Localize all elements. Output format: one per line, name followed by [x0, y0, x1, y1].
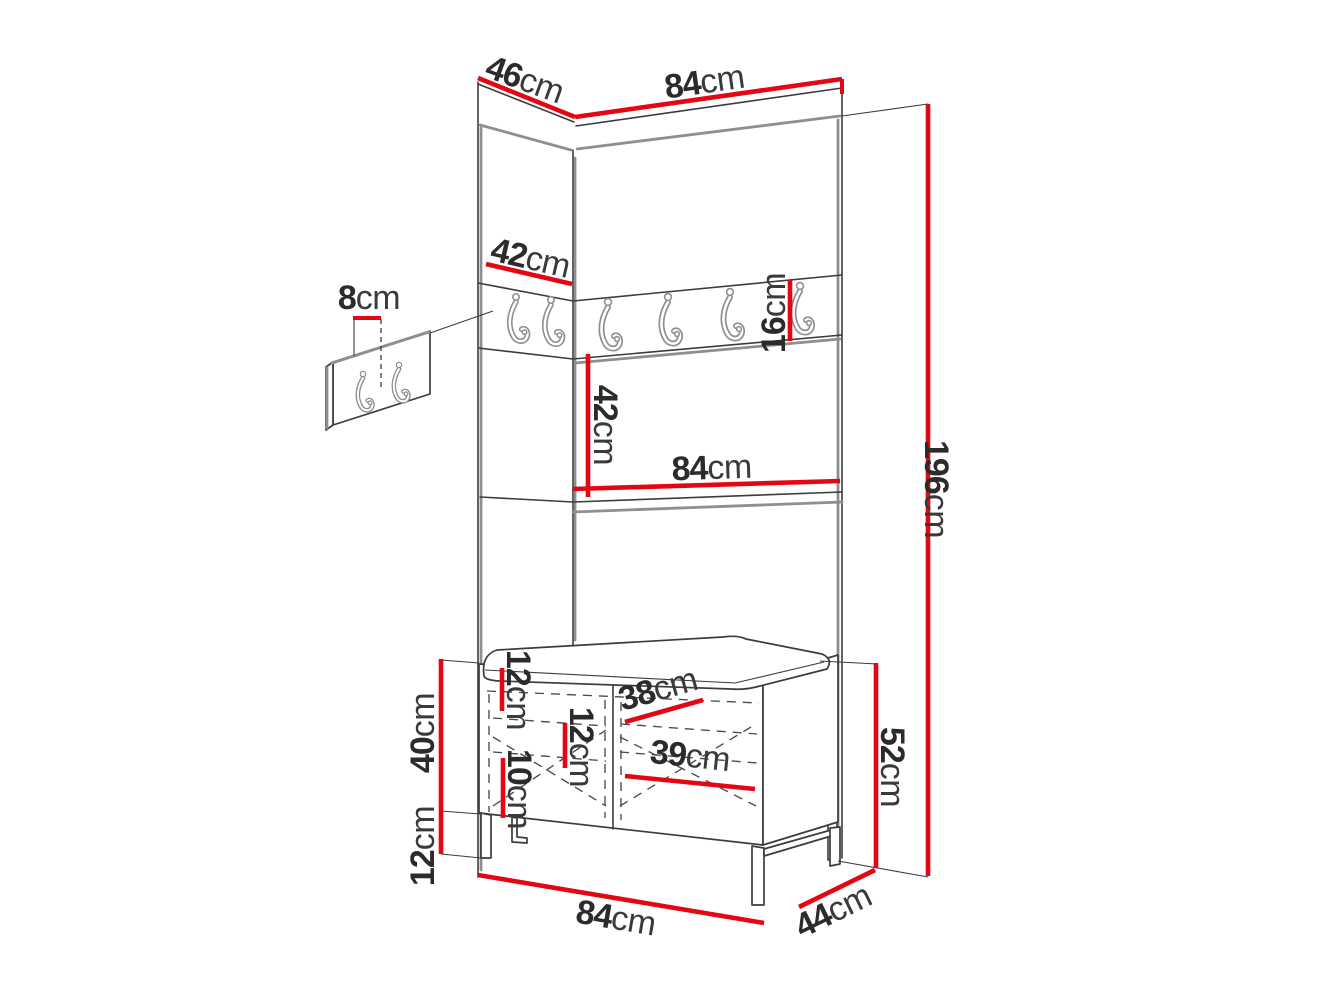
coat-hook-icon — [793, 283, 812, 333]
dimension-bench-width-label: 84cm — [573, 893, 658, 944]
detail-leader-line — [430, 311, 493, 333]
dimension-hook-spacing-label: 8cm — [338, 279, 400, 317]
dimension-middle-section-height-label: 42cm — [586, 385, 624, 465]
middle-shelf — [480, 492, 842, 512]
coat-hook-icon — [510, 294, 528, 341]
detail-hook-panel — [326, 311, 493, 430]
coat-hook-icon — [661, 294, 680, 344]
dimension-bench-top-section-label: 12cm — [499, 650, 537, 730]
dimension-leg-height-label: 12cm — [404, 806, 442, 886]
dimension-bench-depth-label: 44cm — [789, 876, 878, 945]
dimension-bench-middle-section-label: 12cm — [562, 707, 600, 787]
coat-hook-icon — [723, 289, 742, 339]
dimension-top-width-label: 84cm — [662, 58, 747, 107]
dimension-shelf-width-label: 84cm — [671, 448, 752, 489]
dimension-bench-bottom-section-label: 10cm — [500, 749, 538, 829]
dimension-hook-panel-height-label: 16cm — [755, 273, 793, 353]
dimension-hook-panel-width-label: 42cm — [487, 231, 574, 286]
dimension-total-height-label: 196cm — [917, 440, 955, 538]
coat-hook-icon — [545, 297, 563, 344]
dimension-bench-body-height-label: 40cm — [404, 693, 442, 773]
diagram-canvas: 46cm 84cm 42cm 8cm 16cm 42cm 84cm 196cm … — [0, 0, 1333, 1000]
dimension-bench-total-height-label: 52cm — [873, 727, 911, 807]
dimension-diagram: 46cm 84cm 42cm 8cm 16cm 42cm 84cm 196cm … — [0, 0, 1333, 1000]
bench-side — [763, 655, 838, 845]
coat-hook-icon — [601, 299, 620, 349]
